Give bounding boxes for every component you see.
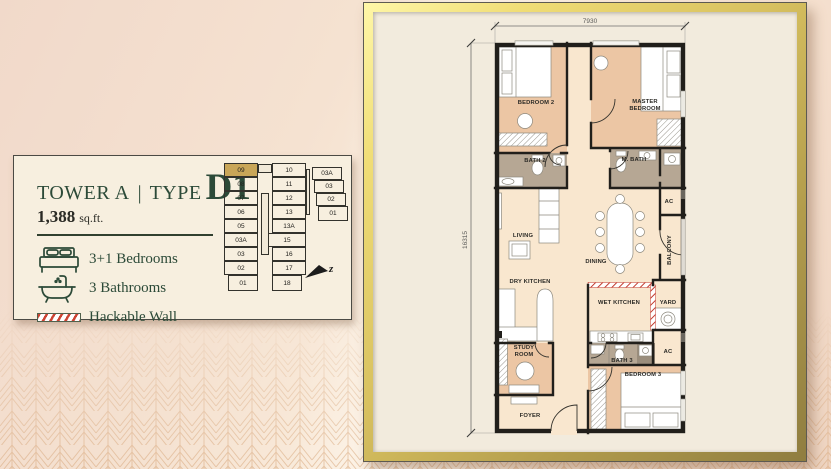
- feature-bedrooms: 3+1 Bedrooms: [37, 245, 227, 274]
- room-label-living: LIVING: [513, 233, 534, 239]
- keyplan-annex-unit: 01: [318, 206, 348, 221]
- room-label-ac-top: AC: [665, 199, 674, 205]
- bathtub-icon: [37, 273, 89, 304]
- feature-bathrooms-label: 3 Bathrooms: [89, 280, 166, 297]
- key-plan: 09 08 07 06 05 03A 03 02 01 10 11 12 13 …: [224, 163, 350, 313]
- north-arrow-icon: z: [302, 261, 342, 283]
- keyplan-unit: 07: [224, 191, 258, 205]
- tower-label: TOWER A: [37, 182, 130, 204]
- keyplan-unit: 05: [224, 219, 258, 233]
- feature-bedrooms-label: 3+1 Bedrooms: [89, 251, 178, 268]
- room-label-study-1: STUDY: [514, 345, 534, 351]
- keyplan-annex-unit: 03A: [312, 167, 342, 180]
- area-unit: sq.ft.: [79, 211, 103, 225]
- floorplan-brochure-page: { "colors":{ "green":"#2c4a38","gold":"#…: [0, 0, 831, 469]
- side-table: [518, 114, 533, 129]
- info-card: TOWER A | TYPE D1 1,388 sq.ft.: [13, 155, 352, 320]
- foyer-cabinet: [511, 397, 537, 404]
- title-separator: |: [138, 182, 142, 204]
- keyplan-lift-core: [258, 164, 272, 173]
- keyplan-unit: 11: [272, 177, 306, 191]
- keyplan-unit: 13: [272, 205, 306, 219]
- divider-line: [37, 234, 213, 236]
- keyplan-unit: 02: [224, 261, 258, 275]
- room-label-dry-kitchen: DRY KITCHEN: [510, 279, 551, 285]
- floor-plan-frame: 7930 16315: [363, 2, 807, 462]
- room-label-study-2: ROOM: [515, 352, 534, 358]
- keyplan-unit: 06: [224, 205, 258, 219]
- feature-hackable-wall: Hackable Wall: [37, 303, 227, 332]
- keyplan-unit-highlighted: 09: [224, 163, 258, 177]
- room-label-wet-kitchen: WET KITCHEN: [598, 300, 640, 306]
- keyplan-unit: 03A: [224, 233, 258, 247]
- feature-bathrooms: 3 Bathrooms: [37, 274, 227, 303]
- floor-plan: 7930 16315: [373, 12, 797, 452]
- dim-width-label: 7930: [583, 18, 598, 25]
- dim-height-label: 16315: [462, 231, 469, 249]
- wardrobe-master: [657, 119, 683, 146]
- room-label-bedroom3: BEDROOM 3: [625, 372, 662, 378]
- room-label-balcony: BALCONY: [667, 235, 673, 265]
- side-table: [594, 56, 608, 70]
- room-label-ac-bottom: AC: [664, 349, 673, 355]
- keyplan-unit: 13A: [272, 219, 306, 233]
- keyplan-unit: 01: [228, 275, 258, 291]
- keyplan-unit: 03: [224, 247, 258, 261]
- keyplan-annex-unit: 02: [316, 193, 346, 206]
- wardrobe-bedroom2: [497, 133, 547, 146]
- keyplan-corridor-core: [261, 193, 269, 255]
- wardrobe-bedroom3: [591, 369, 606, 429]
- room-label-foyer: FOYER: [520, 413, 541, 419]
- unit-area: 1,388 sq.ft.: [37, 207, 227, 227]
- room-label-master-1: MASTER: [632, 99, 658, 105]
- keyplan-unit: 18: [272, 275, 302, 291]
- room-label-yard: YARD: [660, 300, 677, 306]
- hackable-wall-icon: [37, 313, 89, 322]
- keyplan-unit: 16: [272, 247, 306, 261]
- room-label-master-2: BEDROOM: [629, 106, 660, 112]
- keyplan-unit: 12: [272, 191, 306, 205]
- keyplan-annex-corridor: [306, 169, 310, 215]
- svg-text:z: z: [328, 263, 334, 275]
- keyplan-unit: 10: [272, 163, 306, 177]
- type-word: TYPE: [150, 182, 202, 204]
- feature-list: 3+1 Bedrooms 3 Bathrooms Hackable Wall: [37, 245, 227, 332]
- room-label-mbath: M. BATH: [622, 157, 647, 163]
- keyplan-unit: 17: [272, 261, 306, 275]
- dining-table: [607, 203, 633, 265]
- room-label-dining: DINING: [585, 259, 607, 265]
- area-value: 1,388: [37, 207, 75, 226]
- keyplan-unit: 08: [224, 177, 258, 191]
- stove: [598, 333, 617, 342]
- keyplan-annex-unit: 03: [314, 180, 344, 193]
- room-label-bedroom2: BEDROOM 2: [518, 100, 554, 106]
- keyplan-unit: 15: [268, 233, 306, 247]
- bed-icon: [37, 246, 89, 274]
- room-label-bath3: BATH 3: [611, 358, 633, 364]
- floor-plan-canvas: 7930 16315: [373, 12, 797, 452]
- unit-title: TOWER A | TYPE D1: [37, 166, 227, 209]
- feature-hackable-label: Hackable Wall: [89, 309, 177, 326]
- room-label-bath2: BATH 2: [524, 158, 545, 164]
- study-table: [516, 362, 534, 380]
